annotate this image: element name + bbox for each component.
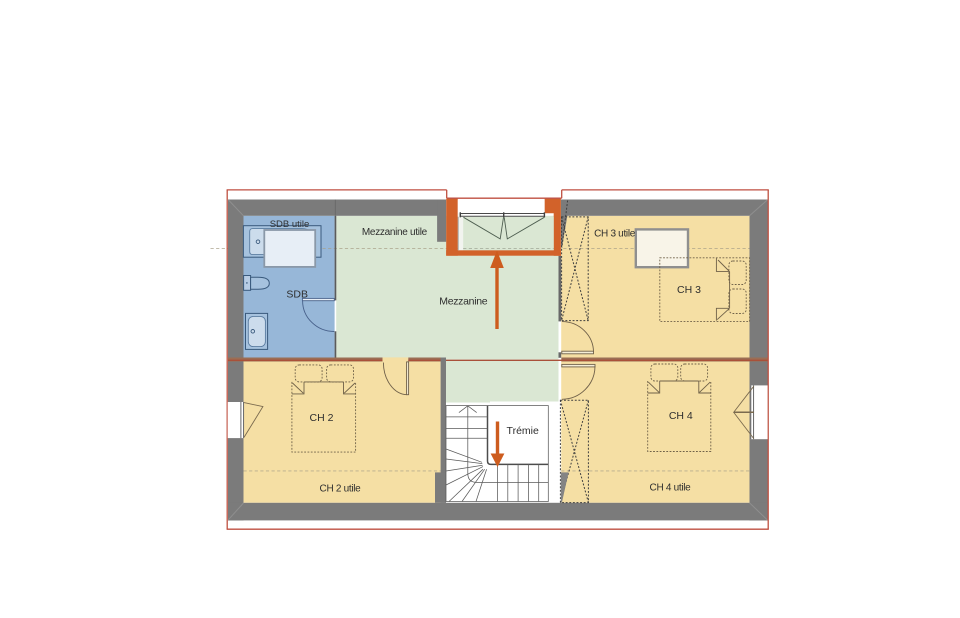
svg-text:Trémie: Trémie — [507, 425, 539, 437]
svg-text:SDB utile: SDB utile — [270, 219, 310, 230]
svg-text:Mezzanine: Mezzanine — [439, 295, 488, 307]
svg-text:SDB: SDB — [286, 288, 308, 300]
svg-text:CH 3 utile: CH 3 utile — [594, 229, 636, 240]
svg-text:CH 3: CH 3 — [677, 284, 701, 296]
svg-text:Mezzanine utile: Mezzanine utile — [362, 227, 428, 238]
svg-text:CH 2: CH 2 — [310, 412, 334, 424]
svg-text:CH 2 utile: CH 2 utile — [320, 483, 362, 494]
svg-text:CH 4 utile: CH 4 utile — [650, 482, 692, 493]
svg-text:CH 4: CH 4 — [669, 410, 693, 422]
